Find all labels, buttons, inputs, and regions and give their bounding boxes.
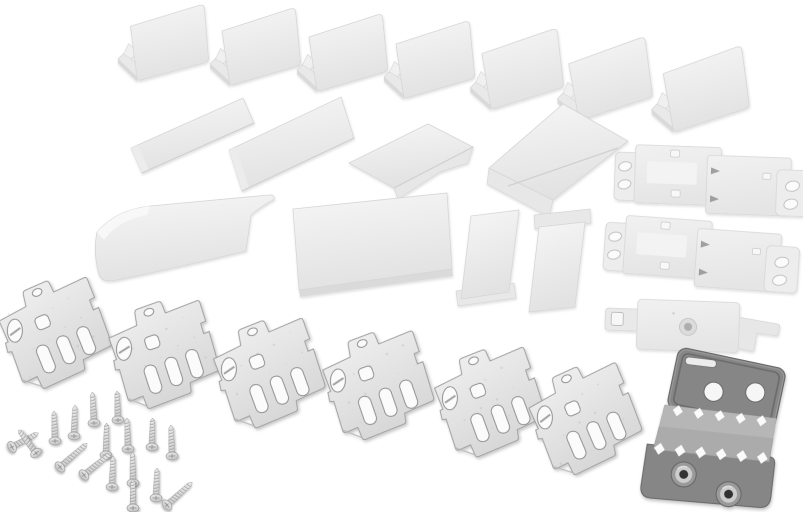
- parts-photo-canvas: [0, 0, 803, 512]
- curved-strip-face: [95, 195, 274, 281]
- cover-face: [662, 47, 750, 132]
- cover-face: [130, 4, 210, 82]
- product-photo: [0, 0, 803, 512]
- tab-square-hole: [611, 312, 623, 325]
- corner-cover-cap: [210, 9, 301, 87]
- steel-slotted-bracket: [0, 268, 118, 396]
- cover-face: [482, 29, 564, 109]
- screw: [48, 411, 61, 445]
- square-hole: [660, 262, 669, 270]
- steel-slotted-bracket: [315, 322, 439, 446]
- screw: [146, 418, 159, 451]
- plastic-bracket-pair: [614, 144, 803, 217]
- corner-cover-cap: [469, 29, 564, 111]
- steel-slotted-bracket: [520, 353, 649, 482]
- square-hole: [671, 190, 680, 197]
- screw: [77, 448, 115, 482]
- screw: [160, 478, 196, 512]
- corner-cover-cap: [649, 47, 750, 134]
- screw: [165, 425, 178, 460]
- plastic-slide-plate: [604, 298, 780, 354]
- screw: [86, 392, 100, 427]
- steel-slotted-bracket: [102, 291, 225, 414]
- small-strip-face: [529, 222, 585, 312]
- small-cover-strip: [529, 209, 591, 312]
- screw: [68, 405, 81, 440]
- square-hole: [752, 248, 760, 255]
- square-hole: [661, 222, 670, 230]
- plastic-bracket-pair: [602, 214, 801, 293]
- cover-face: [222, 9, 301, 85]
- toothed-anchor-bracket: [636, 344, 797, 512]
- screw: [111, 391, 124, 424]
- screw: [121, 418, 134, 453]
- screw: [106, 456, 119, 491]
- corner-cover-cap: [118, 4, 210, 83]
- cover-face: [309, 15, 388, 91]
- wedge-cover: [349, 124, 473, 199]
- wedge-cover: [487, 104, 628, 217]
- steel-slotted-bracket: [206, 309, 331, 434]
- right-flange: [764, 245, 800, 293]
- corner-cover-cap: [297, 15, 388, 93]
- square-hole: [763, 173, 771, 179]
- left-plate-panel: [647, 161, 698, 185]
- screw: [150, 468, 163, 502]
- corner-cover-cap: [384, 22, 475, 100]
- square-hole: [670, 150, 679, 157]
- steel-slotted-bracket: [427, 338, 552, 463]
- small-cover-strip: [456, 210, 519, 306]
- cover-face: [396, 22, 475, 98]
- cover-face: [568, 37, 653, 120]
- left-plate-panel: [636, 232, 687, 257]
- curved-cover-strip: [95, 195, 274, 281]
- large-cover-plate: [293, 193, 453, 297]
